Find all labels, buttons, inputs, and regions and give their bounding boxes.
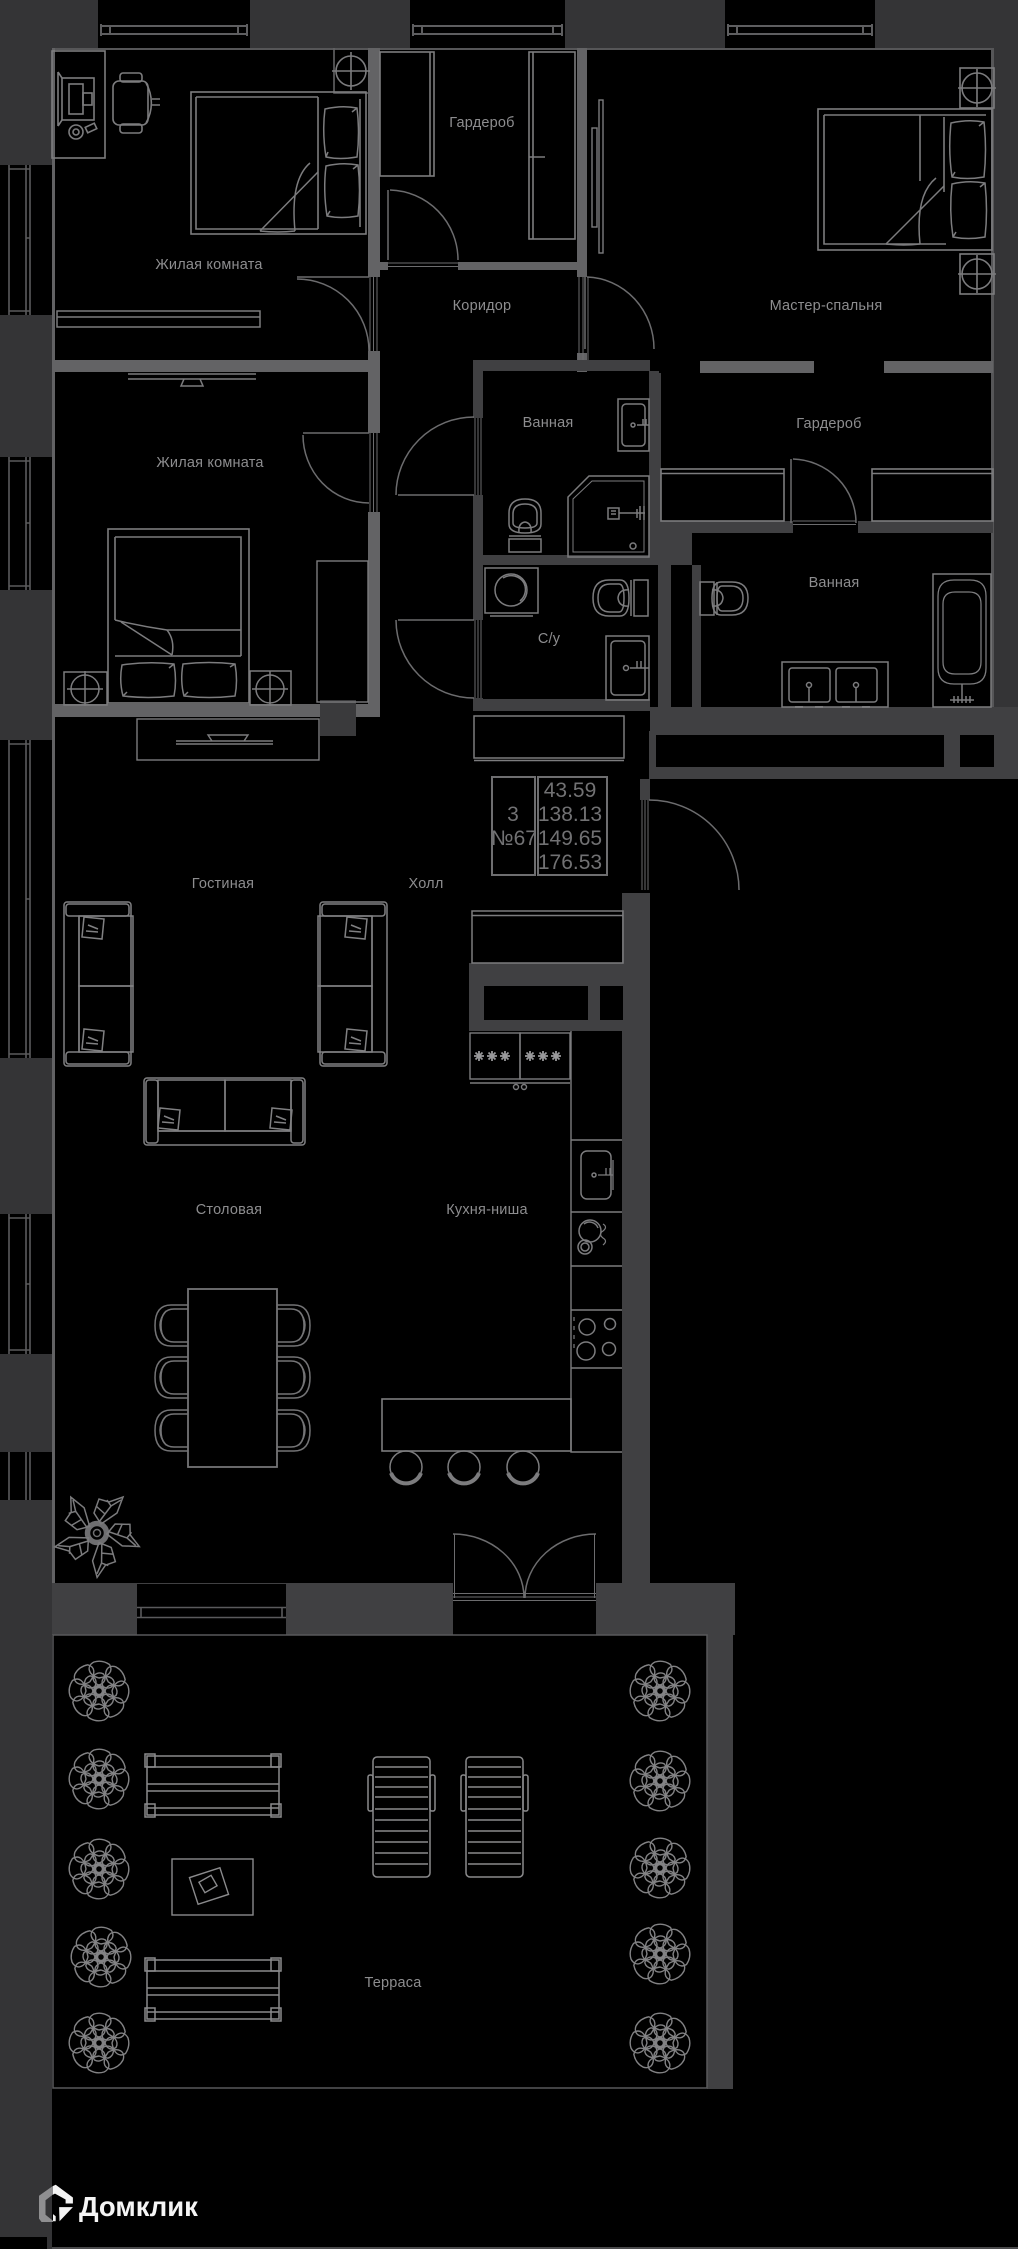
svg-text:Ванная: Ванная [809,575,860,591]
svg-text:Кухня-ниша: Кухня-ниша [446,1202,528,1218]
svg-text:Жилая комната: Жилая комната [155,257,263,273]
svg-text:Гостиная: Гостиная [192,876,254,892]
svg-text:С/у: С/у [538,631,561,647]
svg-text:149.65: 149.65 [538,827,602,850]
svg-text:176.53: 176.53 [538,851,602,874]
svg-text:Коридор: Коридор [453,298,512,314]
svg-text:Ванная: Ванная [523,415,574,431]
svg-text:Домклик: Домклик [79,2191,198,2222]
svg-text:Терраса: Терраса [364,1975,422,1991]
svg-text:Холл: Холл [409,876,444,892]
svg-text:Мастер-спальня: Мастер-спальня [770,298,883,314]
svg-text:Гардероб: Гардероб [449,115,514,131]
svg-text:3: 3 [507,803,519,826]
svg-text:№67: №67 [491,827,537,850]
svg-text:Гардероб: Гардероб [796,416,861,432]
svg-text:43.59: 43.59 [544,779,597,802]
svg-text:Столовая: Столовая [196,1202,262,1218]
svg-text:138.13: 138.13 [538,803,602,826]
svg-text:Жилая комната: Жилая комната [156,455,264,471]
